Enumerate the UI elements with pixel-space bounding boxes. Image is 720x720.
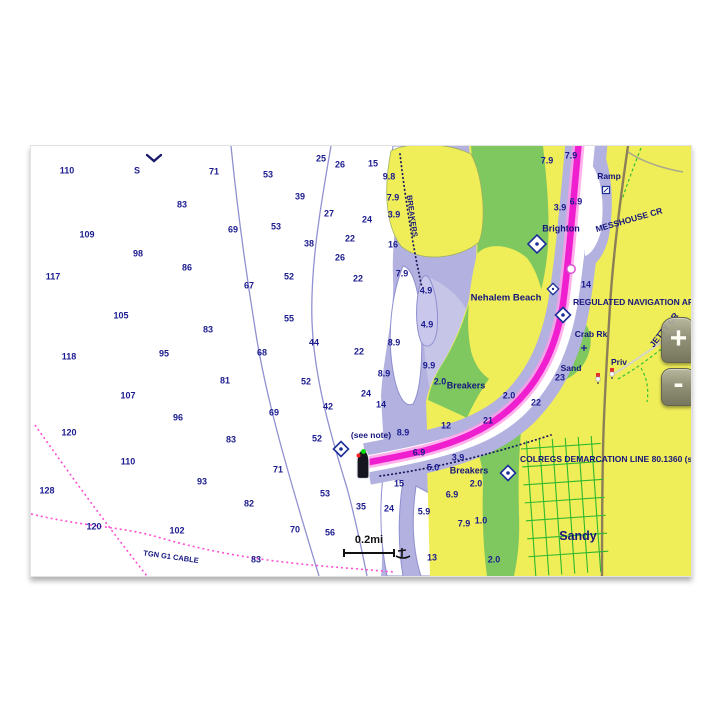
- depth-sounding: 128: [39, 487, 54, 496]
- map-label: Ramp: [597, 172, 621, 181]
- ramp-marker: [602, 186, 611, 195]
- depth-sounding: 117: [46, 273, 61, 282]
- depth-sounding: 3.9: [554, 204, 567, 213]
- depth-sounding: 4.9: [421, 321, 434, 330]
- depth-sounding: 9.8: [383, 173, 396, 182]
- depth-sounding: 81: [220, 377, 230, 386]
- beacon-square-icon: [546, 282, 560, 296]
- map-label: Breakers: [450, 467, 489, 476]
- depth-sounding: 5.0: [427, 464, 440, 473]
- depth-sounding: 38: [304, 240, 314, 249]
- light-marker: [594, 372, 602, 384]
- depth-sounding: 4.9: [420, 287, 433, 296]
- depth-sounding: 23: [555, 374, 565, 383]
- depth-sounding: 22: [531, 399, 541, 408]
- scale-bar: 0.2mi: [339, 534, 399, 557]
- depth-sounding: 110: [60, 167, 75, 176]
- chevron-symbol-icon: [145, 153, 163, 163]
- diamond-marker[interactable]: [332, 440, 351, 459]
- depth-sounding: 53: [320, 490, 330, 499]
- depth-sounding: 7.9: [458, 520, 471, 529]
- light-marker-icon: [594, 372, 602, 384]
- scale-bar-line: [343, 549, 395, 557]
- depth-sounding: 5.9: [418, 508, 431, 517]
- boat-ramp-icon: [602, 186, 611, 195]
- depth-sounding: 27: [324, 210, 334, 219]
- depth-sounding: 8.9: [378, 370, 391, 379]
- depth-sounding: 52: [312, 435, 322, 444]
- depth-sounding: 22: [353, 275, 363, 284]
- depth-sounding: 25: [316, 155, 326, 164]
- depth-sounding: 7.9: [565, 152, 578, 161]
- depth-sounding: 53: [271, 223, 281, 232]
- depth-sounding: 83: [177, 201, 187, 210]
- depth-sounding: 96: [173, 414, 183, 423]
- depth-sounding: 69: [228, 226, 238, 235]
- depth-sounding: 107: [120, 392, 135, 401]
- depth-sounding: 93: [197, 478, 207, 487]
- depth-sounding: 16: [388, 241, 398, 250]
- chart-overlays: 110S71532526159.883397.93.92724109695322…: [31, 146, 691, 576]
- depth-sounding: 2.0: [434, 378, 447, 387]
- map-label: Breakers: [447, 382, 486, 391]
- depth-sounding: 3.9: [388, 211, 401, 220]
- map-label: (see note): [351, 431, 391, 440]
- depth-sounding: 69: [269, 409, 279, 418]
- chart-map[interactable]: 110S71532526159.883397.93.92724109695322…: [30, 145, 692, 577]
- depth-sounding: 118: [62, 353, 77, 362]
- depth-sounding: 67: [244, 282, 254, 291]
- depth-sounding: 14: [581, 281, 591, 290]
- depth-sounding: 8.9: [388, 339, 401, 348]
- depth-sounding: 6.9: [446, 491, 459, 500]
- depth-sounding: 6.9: [413, 449, 426, 458]
- depth-sounding: 39: [295, 193, 305, 202]
- depth-sounding: 82: [244, 500, 254, 509]
- depth-sounding: 102: [169, 527, 184, 536]
- depth-sounding: 71: [273, 466, 283, 475]
- depth-sounding: 24: [384, 505, 394, 514]
- light-marker-icon: [608, 367, 616, 379]
- depth-sounding: 26: [335, 254, 345, 263]
- map-label: Sand: [561, 364, 582, 373]
- map-label: COLREGS DEMARCATION LINE 80.1360 (see: [520, 455, 692, 464]
- beacon-diamond-icon: [499, 464, 518, 483]
- depth-sounding: 70: [290, 526, 300, 535]
- depth-sounding: 83: [203, 326, 213, 335]
- sq45-marker: [546, 282, 560, 296]
- depth-sounding: 105: [113, 312, 128, 321]
- depth-sounding: 24: [361, 390, 371, 399]
- depth-sounding: 52: [301, 378, 311, 387]
- depth-sounding: 2.0: [470, 480, 483, 489]
- depth-sounding: 7.9: [396, 270, 409, 279]
- depth-sounding: 2.0: [503, 392, 516, 401]
- depth-sounding: 35: [356, 503, 366, 512]
- depth-sounding: 1.0: [475, 517, 488, 526]
- depth-sounding: 7.9: [541, 157, 554, 166]
- map-label: Crab Rk: [575, 330, 608, 339]
- depth-sounding: 44: [309, 339, 319, 348]
- rockcross-marker: [579, 343, 589, 353]
- depth-sounding: 52: [284, 273, 294, 282]
- depth-sounding: 83: [251, 556, 261, 565]
- depth-sounding: 120: [61, 429, 76, 438]
- depth-sounding: 95: [159, 350, 169, 359]
- boat-marker[interactable]: [353, 447, 373, 481]
- depth-sounding: 120: [86, 523, 101, 532]
- depth-sounding: 13: [427, 554, 437, 563]
- light-marker: [608, 367, 616, 379]
- map-label: Nehalem Beach: [471, 293, 542, 303]
- depth-sounding: 2.0: [488, 556, 501, 565]
- depth-sounding: 9.9: [423, 362, 436, 371]
- depth-sounding: 8.9: [397, 429, 410, 438]
- route-waypoint-icon: [565, 263, 577, 275]
- depth-sounding: 22: [354, 348, 364, 357]
- rock-cross-icon: [579, 343, 589, 353]
- depth-sounding: 42: [323, 403, 333, 412]
- depth-sounding: 53: [263, 171, 273, 180]
- scale-label: 0.2mi: [339, 534, 399, 546]
- depth-sounding: 3.9: [452, 454, 465, 463]
- chevron-marker: [145, 153, 163, 163]
- own-vessel-boat-icon: [353, 447, 373, 481]
- depth-sounding: 21: [483, 417, 493, 426]
- map-label: REGULATED NAVIGATION AREA: [573, 298, 692, 307]
- depth-sounding: 55: [284, 315, 294, 324]
- map-label: Priv: [611, 358, 627, 367]
- depth-sounding: 12: [441, 422, 451, 431]
- depth-sounding: S: [134, 167, 140, 176]
- depth-sounding: 83: [226, 436, 236, 445]
- depth-sounding: 98: [133, 250, 143, 259]
- zoom-out-button[interactable]: -: [661, 368, 692, 406]
- beacon-diamond-icon: [332, 440, 351, 459]
- map-label: Sandy: [559, 530, 597, 543]
- depth-sounding: 110: [121, 458, 136, 467]
- depth-sounding: 22: [345, 235, 355, 244]
- depth-sounding: 14: [376, 401, 386, 410]
- diamond-marker[interactable]: [499, 464, 518, 483]
- map-label: TGN G1 CABLE: [143, 549, 199, 564]
- depth-sounding: 24: [362, 216, 372, 225]
- diamond-marker[interactable]: [526, 233, 548, 255]
- beacon-diamond-icon: [554, 306, 573, 325]
- depth-sounding: 71: [209, 168, 219, 177]
- map-label: MESSHOUSE CR: [595, 206, 664, 233]
- depth-sounding: 15: [394, 480, 404, 489]
- diamond-marker[interactable]: [554, 306, 573, 325]
- waypoint-marker: [565, 263, 577, 275]
- depth-sounding: 86: [182, 264, 192, 273]
- depth-sounding: 109: [79, 231, 94, 240]
- depth-sounding: 15: [368, 160, 378, 169]
- beacon-diamond-icon: [526, 233, 548, 255]
- depth-sounding: 26: [335, 161, 345, 170]
- depth-sounding: 6.9: [570, 198, 583, 207]
- map-label: BREAKERS: [405, 195, 418, 238]
- depth-sounding: 56: [325, 529, 335, 538]
- depth-sounding: 7.9: [387, 194, 400, 203]
- depth-sounding: 68: [257, 349, 267, 358]
- zoom-in-button[interactable]: +: [661, 317, 692, 363]
